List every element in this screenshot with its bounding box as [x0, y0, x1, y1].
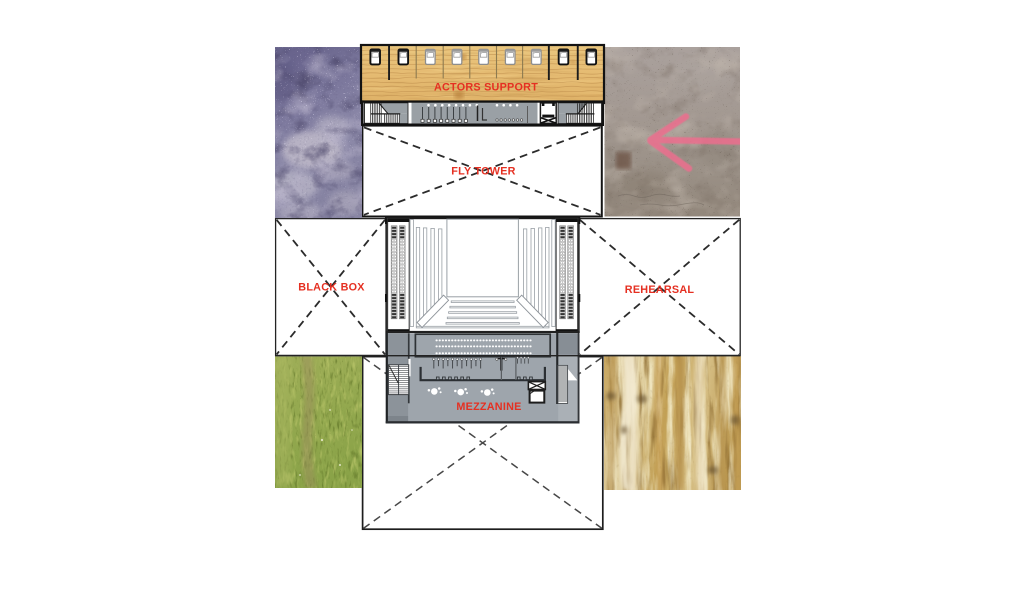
- svg-text:BLACK BOX: BLACK BOX: [298, 281, 365, 293]
- svg-text:REHEARSAL: REHEARSAL: [625, 284, 695, 296]
- svg-text:ACTORS SUPPORT: ACTORS SUPPORT: [434, 82, 538, 94]
- svg-text:FLY TOWER: FLY TOWER: [451, 166, 515, 178]
- svg-text:MEZZANINE: MEZZANINE: [456, 401, 521, 413]
